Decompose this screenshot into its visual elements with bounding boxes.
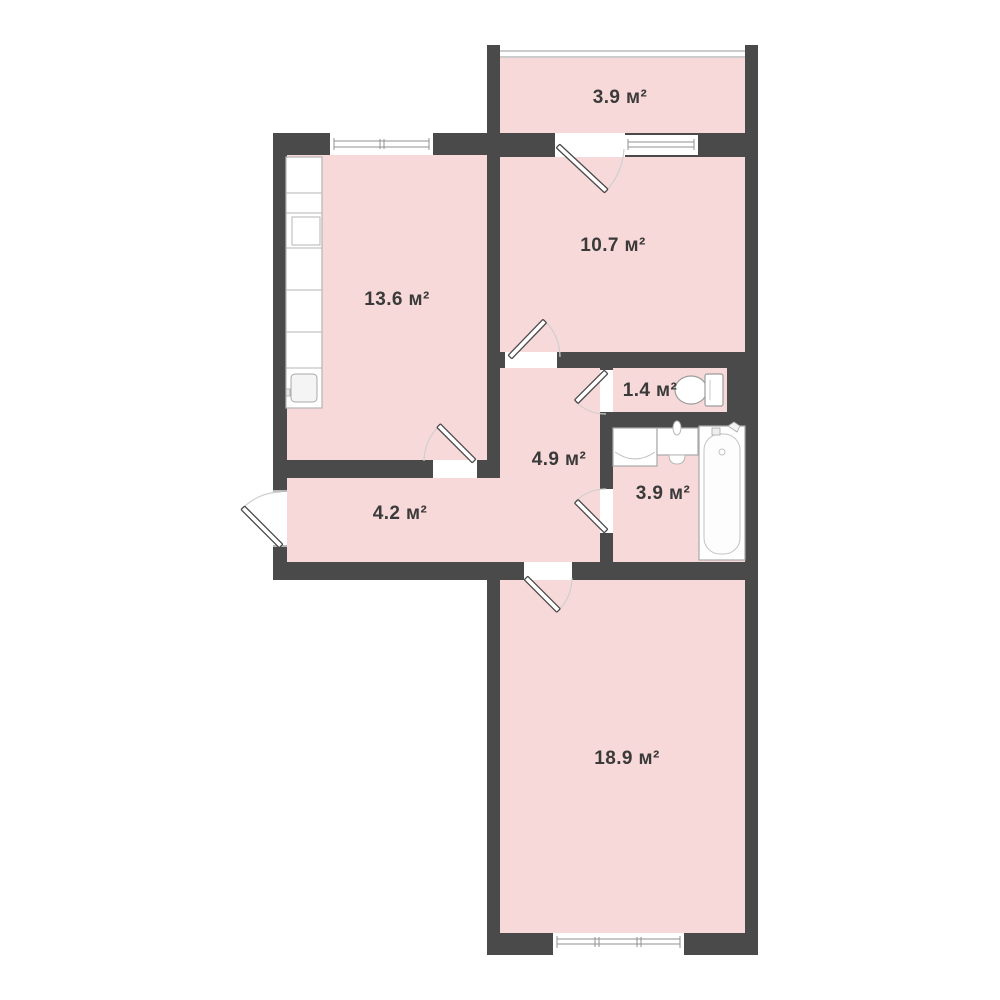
living-room-door-opening: [524, 562, 572, 580]
wall-mid-vertical-upper: [487, 45, 500, 478]
wall-right-outer: [745, 45, 758, 955]
room-label-bedroom: 10.7 м²: [580, 235, 645, 257]
living-room-window: [553, 933, 684, 955]
kitchen-window: [330, 133, 433, 155]
toilet: [675, 374, 723, 406]
floor-plan-drawing: [0, 0, 1000, 1000]
wall-mid-vertical-lower: [487, 562, 500, 955]
room-label-wc: 1.4 м²: [623, 380, 677, 402]
balcony-railing: [489, 51, 756, 57]
room-label-corridor: 4.2 м²: [373, 503, 427, 525]
room-label-hallway: 4.9 м²: [532, 449, 586, 471]
kitchen-stove: [291, 374, 317, 402]
bathtub: [699, 422, 745, 560]
balcony-window: [623, 135, 698, 155]
wall-south-mid: [273, 562, 758, 580]
room-label-living-room: 18.9 м²: [594, 748, 659, 770]
room-label-balcony: 3.9 м²: [593, 87, 647, 109]
room-label-kitchen: 13.6 м²: [364, 289, 429, 311]
kitchen-counter: [286, 157, 322, 408]
corridor-floor: [287, 478, 600, 562]
room-label-bathroom: 3.9 м²: [636, 483, 690, 505]
wall-duct-block: [727, 352, 758, 428]
bathtub-tap: [712, 428, 720, 435]
floor-plan: 3.9 м² 10.7 м² 13.6 м² 1.4 м² 4.9 м² 3.9…: [0, 0, 1000, 1000]
kitchen-door-opening: [433, 460, 477, 478]
washing-machine: [613, 428, 657, 466]
